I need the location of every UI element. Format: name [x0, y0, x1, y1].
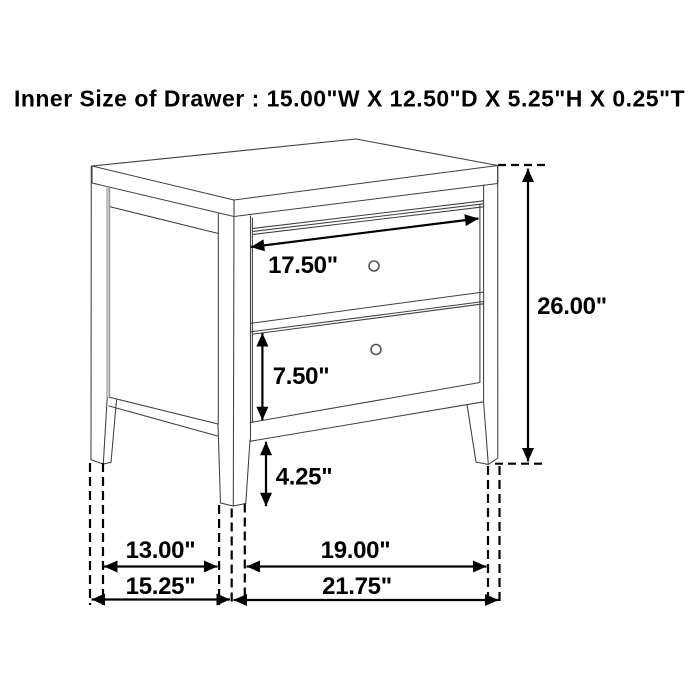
svg-text:13.00": 13.00"	[126, 537, 196, 564]
svg-text:15.25": 15.25"	[126, 573, 196, 600]
svg-text:4.25": 4.25"	[276, 463, 333, 490]
svg-text:19.00": 19.00"	[321, 537, 391, 564]
svg-text:17.50": 17.50"	[268, 252, 338, 279]
svg-text:7.50": 7.50"	[273, 363, 330, 390]
svg-text:21.75": 21.75"	[322, 573, 392, 600]
svg-text:26.00": 26.00"	[537, 293, 607, 320]
svg-text:Inner Size of Drawer : 15.00"W: Inner Size of Drawer : 15.00"W X 12.50"D…	[14, 86, 685, 112]
